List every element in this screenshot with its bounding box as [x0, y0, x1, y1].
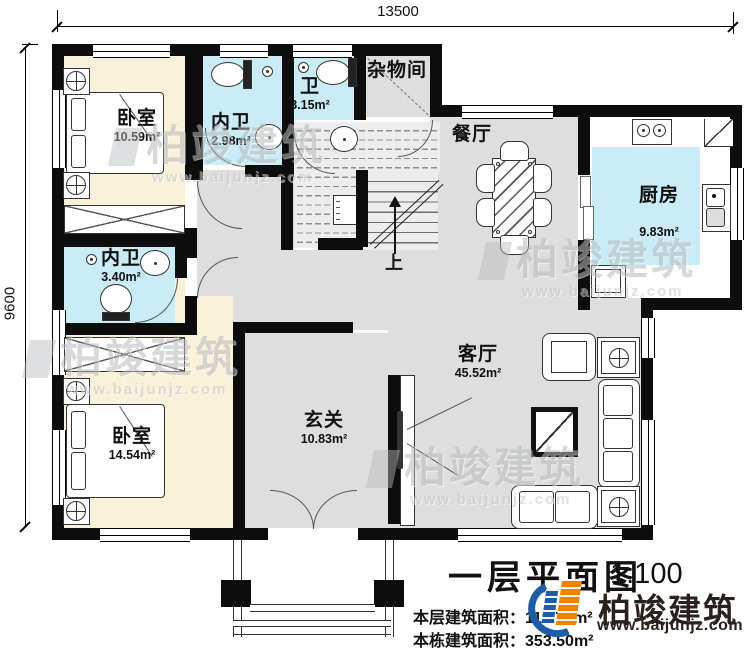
- brand-url: www.baijunjz.com: [597, 617, 743, 635]
- wall: [175, 247, 187, 278]
- wall: [356, 170, 368, 247]
- dining-table-icon: [492, 158, 536, 238]
- side-table: [597, 486, 640, 527]
- fridge-icon: [591, 265, 626, 298]
- wardrobe-icon: [64, 337, 185, 372]
- faucet-dot: [712, 194, 716, 198]
- room-label-living: 客厅 45.52m²: [446, 344, 510, 380]
- window: [462, 105, 553, 119]
- armchair-cushion: [551, 341, 587, 373]
- room-name: 厨房: [628, 185, 690, 207]
- wall: [245, 165, 294, 177]
- toilet-icon: [211, 62, 245, 87]
- dimension-ext: [733, 12, 734, 34]
- burner-icon: [653, 124, 666, 137]
- room-name: 卧室: [92, 108, 182, 130]
- room-label-dining: 餐厅: [442, 124, 502, 146]
- dimension-ext: [22, 44, 38, 45]
- room-area: 3.15m²: [284, 98, 336, 112]
- porch-step-edge: [233, 634, 391, 635]
- kitchen-sink-icon: [702, 184, 731, 232]
- wall: [578, 240, 590, 310]
- nightstand-circle-icon: [66, 71, 86, 91]
- room-name: 餐厅: [442, 124, 502, 146]
- wall: [641, 358, 653, 420]
- porch-column: [374, 580, 404, 607]
- chair-icon: [476, 198, 495, 227]
- nightstand-circle-icon: [66, 175, 86, 195]
- room-name: 卧室: [96, 426, 168, 448]
- nightstand-circle-icon: [66, 501, 86, 521]
- sofa-cushion: [603, 385, 633, 416]
- room-area: 3.40m²: [90, 270, 152, 284]
- room-label-bath: 卫 3.15m²: [284, 76, 336, 112]
- corner-cabinet-icon: [704, 119, 733, 147]
- nightstand-circle-icon: [66, 381, 86, 401]
- room-area: 9.83m²: [628, 225, 690, 239]
- room-label-bedroom1: 卧室 10.59m²: [92, 108, 182, 144]
- chair-icon: [500, 235, 529, 255]
- stove-icon: [632, 119, 672, 145]
- corridor-floor: [197, 296, 233, 335]
- room-name: 卫: [284, 76, 336, 98]
- room-name: 内卫: [200, 112, 262, 134]
- room-name: 玄关: [294, 410, 354, 432]
- pillow-icon: [71, 452, 86, 490]
- ceiling-light-icon: [262, 66, 273, 77]
- total-area-label: 本栋建筑面积：: [413, 633, 525, 650]
- ceiling-light-icon: [298, 62, 309, 73]
- wall: [622, 528, 653, 540]
- room-label-entry: 玄关 10.83m²: [294, 410, 354, 446]
- wall: [653, 298, 742, 310]
- wall: [190, 528, 268, 540]
- fridge-inner: [595, 269, 621, 293]
- window: [220, 44, 268, 58]
- room-label-kitchen: 厨房 9.83m²: [628, 185, 690, 239]
- floor-plan-canvas: 上: [0, 0, 750, 655]
- plant-icon: [609, 348, 629, 368]
- window: [100, 528, 190, 542]
- window: [93, 44, 170, 58]
- wall: [553, 105, 742, 117]
- window: [730, 168, 744, 240]
- armchair-icon: [542, 333, 596, 381]
- room-area: 14.54m²: [96, 448, 168, 462]
- kitchen-slider-door: [583, 206, 594, 240]
- wall: [358, 528, 458, 540]
- wall: [52, 232, 187, 247]
- chair-icon: [533, 198, 552, 227]
- window: [52, 430, 66, 505]
- sofa-cushion: [519, 491, 554, 523]
- plant-icon: [609, 497, 629, 517]
- sink-icon: [330, 126, 358, 152]
- porch-step: [233, 620, 391, 627]
- sofa-cushion: [603, 418, 633, 449]
- stair-up-label: 上: [382, 253, 406, 274]
- kitchen-slider-door: [580, 176, 591, 208]
- porch-column: [221, 580, 251, 607]
- window: [52, 90, 66, 168]
- window: [293, 44, 352, 58]
- sofa-2seat-icon: [511, 485, 598, 529]
- sofa-cushion: [555, 491, 590, 523]
- room-name: 内卫: [90, 248, 152, 270]
- room-area: 10.59m²: [92, 130, 182, 144]
- dimension-ext: [57, 10, 58, 32]
- toilet-tank: [102, 312, 130, 321]
- chair-icon: [500, 141, 529, 161]
- wall: [233, 322, 353, 333]
- pillow-icon: [71, 411, 86, 449]
- wardrobe-icon: [64, 205, 185, 234]
- brand-logo-icon: [532, 577, 598, 651]
- window: [641, 420, 655, 525]
- wall: [641, 298, 653, 318]
- toilet-tank: [243, 60, 252, 89]
- stair-up-arrow-line: [394, 204, 396, 254]
- porch-step: [250, 604, 375, 612]
- tv-icon: [397, 411, 403, 469]
- room-area: 45.52m²: [446, 366, 510, 380]
- dimension-line-top: [57, 26, 733, 27]
- dimension-value-top: 13500: [368, 3, 428, 20]
- room-area: 2.98m²: [200, 134, 262, 148]
- chair-icon: [476, 164, 495, 193]
- room-label-ensuite-top: 内卫 2.98m²: [200, 112, 262, 148]
- sink-basin: [706, 208, 725, 227]
- wall: [52, 323, 197, 335]
- wall: [281, 177, 293, 250]
- room-label-bedroom2: 卧室 14.54m²: [96, 426, 168, 462]
- chair-icon: [533, 164, 552, 193]
- room-name: 客厅: [446, 344, 510, 366]
- coffee-table-icon: [531, 407, 578, 457]
- toilet-tank: [348, 58, 357, 87]
- room-label-storage: 杂物间: [358, 60, 436, 82]
- room-area: 10.83m²: [294, 432, 354, 446]
- wall: [233, 322, 245, 528]
- sofa-cushion: [603, 451, 633, 482]
- wall: [442, 105, 462, 117]
- window: [458, 528, 622, 542]
- wall: [578, 117, 590, 175]
- dimension-line-left: [25, 48, 26, 527]
- floor-area-label: 本层建筑面积：: [413, 610, 525, 627]
- dimension-value-left: 9600: [2, 282, 19, 326]
- side-table: [597, 337, 640, 378]
- sofa-3seat-icon: [598, 379, 640, 488]
- burner-icon: [637, 124, 650, 137]
- toilet-icon: [100, 284, 132, 314]
- pillow-icon: [71, 98, 86, 131]
- pillow-icon: [71, 135, 86, 168]
- stair-up-arrow-head: [389, 196, 401, 207]
- room-name: 杂物间: [358, 60, 436, 82]
- room-label-ensuite-left: 内卫 3.40m²: [90, 248, 152, 284]
- sink-basin: [706, 188, 725, 207]
- watermark-logo-icon: [22, 340, 56, 378]
- stair-flight-lower: [368, 172, 438, 250]
- window: [641, 318, 655, 358]
